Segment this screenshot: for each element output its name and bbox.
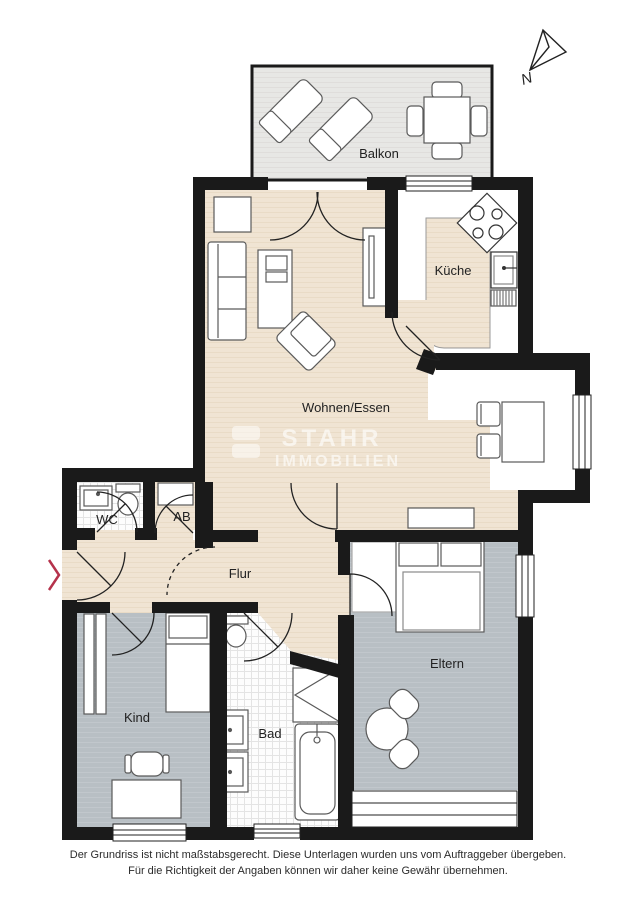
disclaimer-line-1: Der Grundriss ist nicht maßstabsgerecht.…: [0, 847, 636, 863]
wc-door-threshold: [95, 528, 135, 542]
north-label: N: [519, 69, 535, 89]
room-label-bad: Bad: [258, 726, 281, 741]
wc-sink: [80, 486, 112, 510]
disclaimer-line-2: Für die Richtigkeit der Angaben können w…: [0, 863, 636, 879]
kids-bed: [166, 613, 210, 712]
tv-board: [258, 250, 292, 328]
storage-shelf: [158, 483, 193, 505]
room-label-kind: Kind: [124, 710, 150, 725]
double-bed: [396, 540, 484, 632]
watermark-line1: STAHR: [282, 425, 383, 452]
watermark-line2: IMMOBILIEN: [275, 453, 401, 470]
entrance-arrow-icon: [49, 560, 59, 590]
disclaimer: Der Grundriss ist nicht maßstabsgerecht.…: [0, 847, 636, 879]
desk-chair: [125, 752, 169, 776]
balcony-table: [424, 97, 470, 143]
kitchen-sink: [491, 252, 517, 288]
sofa: [208, 242, 246, 340]
parents-bottom-window: [352, 791, 517, 827]
floor-plan-svg: STAHR IMMOBILIEN: [0, 0, 636, 900]
eltern-door-threshold: [338, 575, 350, 616]
kids-window: [113, 824, 186, 841]
wardrobe: [352, 542, 397, 612]
room-label-wc: WC: [96, 512, 118, 527]
ab-door-threshold: [157, 528, 193, 542]
north-arrow-icon: [530, 30, 566, 70]
bath-window: [254, 824, 300, 838]
room-label-flur: Flur: [229, 566, 252, 581]
dining-table: [502, 402, 544, 462]
room-label-balkon: Balkon: [359, 146, 399, 161]
room-label-wohnen-essen: Wohnen/Essen: [302, 400, 390, 415]
bathtub: [295, 724, 340, 820]
watermark-logo: [232, 426, 260, 440]
kitchen-window: [406, 176, 472, 191]
kind-door-threshold: [110, 600, 152, 613]
living-hall-passage-floor: [258, 528, 335, 542]
lowboard: [408, 508, 474, 528]
hallway-floor: [77, 540, 338, 602]
desk: [112, 780, 181, 818]
kitchen-dishrack: [491, 290, 516, 306]
parents-side-window: [516, 555, 534, 617]
room-label-ab: AB: [173, 509, 190, 524]
watermark-logo-2: [232, 444, 260, 458]
entrance-floor: [62, 550, 77, 600]
floorplan-page: STAHR IMMOBILIEN: [0, 0, 636, 900]
side-table: [214, 197, 251, 232]
room-label-kueche: Küche: [435, 263, 472, 278]
bath-toilet: [225, 616, 248, 647]
room-label-eltern: Eltern: [430, 656, 464, 671]
nook-window: [573, 395, 591, 469]
